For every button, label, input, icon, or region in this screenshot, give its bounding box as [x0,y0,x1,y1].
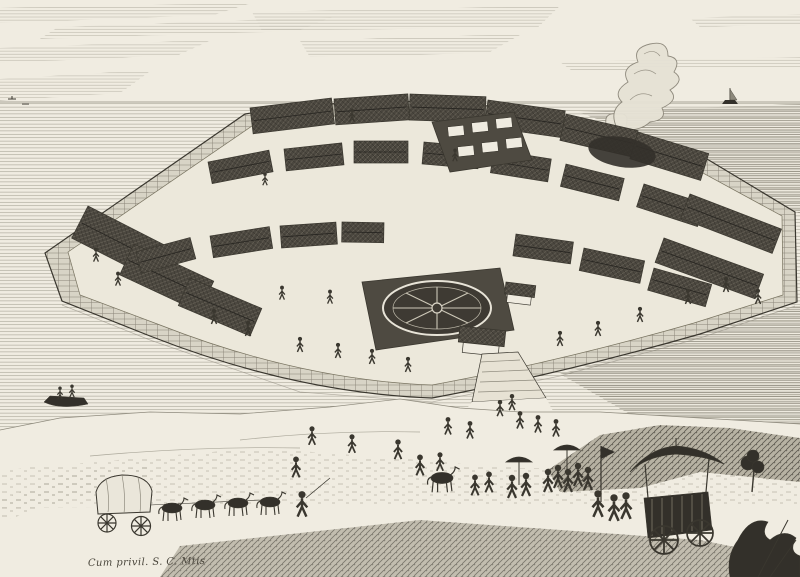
engraving-canvas: hatched cloud bands harbour water sailin… [0,0,800,577]
warehouse [354,141,408,163]
plate-caption: Cum privil. S. C. Mtis [88,556,206,569]
warehouse [342,222,384,243]
pavilion [504,282,536,306]
warehouse [280,222,337,248]
warehouse [334,94,410,125]
engraving-view: hatched cloud bands harbour water sailin… [0,0,800,577]
